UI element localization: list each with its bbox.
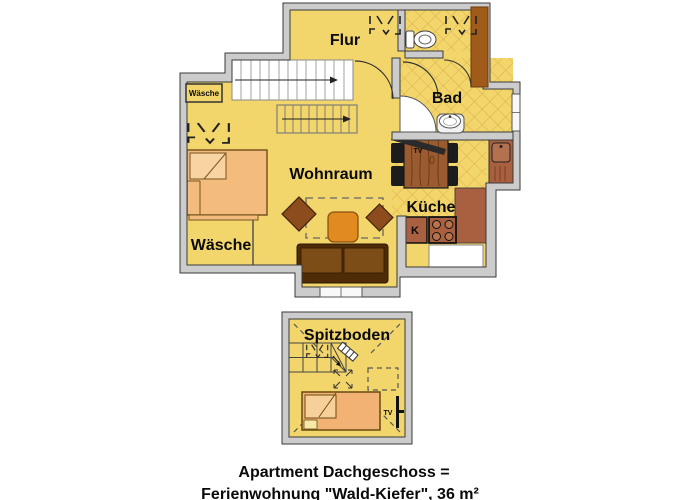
tv-label-upper: TV: [414, 148, 423, 155]
upper-floorplan: TV K: [180, 3, 520, 297]
pillow: [190, 153, 226, 179]
double-bed: [187, 150, 267, 220]
work-counter: [429, 245, 483, 267]
chimney: [471, 7, 488, 87]
bedside-shelf: [304, 420, 317, 429]
laundry-closet-label: Wäsche: [189, 89, 220, 98]
room-label-flur: Flur: [330, 32, 360, 49]
caption-line-2: Ferienwohnung "Wald-Kiefer", 36 m²: [201, 486, 479, 500]
attic-floorplan: TV Spitzboden: [282, 312, 412, 444]
caption-line-1: Apartment Dachgeschoss =: [238, 464, 449, 481]
room-label-wohnraum: Wohnraum: [289, 166, 372, 183]
room-label-bad: Bad: [432, 90, 462, 107]
kitchen-sink-icon: [489, 140, 513, 185]
room-label-waesche: Wäsche: [191, 237, 252, 254]
attic-bed: [302, 392, 380, 430]
window-icon-bottom: [320, 287, 362, 297]
sofa: [297, 244, 388, 283]
coffee-table: [328, 212, 358, 242]
laundry-closet: Wäsche: [186, 84, 222, 102]
window-icon-right: [512, 94, 520, 131]
toilet-icon: [406, 31, 436, 48]
washbasin-icon: [437, 114, 464, 133]
stove-icon: [429, 217, 456, 243]
floor-plan-canvas: TV K: [0, 0, 700, 500]
kitchen-counter: [455, 188, 486, 243]
fridge-box: K: [403, 217, 427, 243]
apartment-floorplan-drawing: TV K: [0, 0, 700, 500]
attic-staircase: [277, 105, 357, 133]
room-label-spitzboden: Spitzboden: [304, 327, 390, 344]
room-label-kueche: Küche: [407, 199, 456, 216]
main-staircase: [232, 60, 353, 100]
tv-label-attic: TV: [384, 410, 393, 417]
fridge-label: K: [411, 225, 419, 237]
caption: Apartment Dachgeschoss = Ferienwohnung "…: [201, 464, 479, 500]
bed-footboard: [189, 215, 258, 220]
